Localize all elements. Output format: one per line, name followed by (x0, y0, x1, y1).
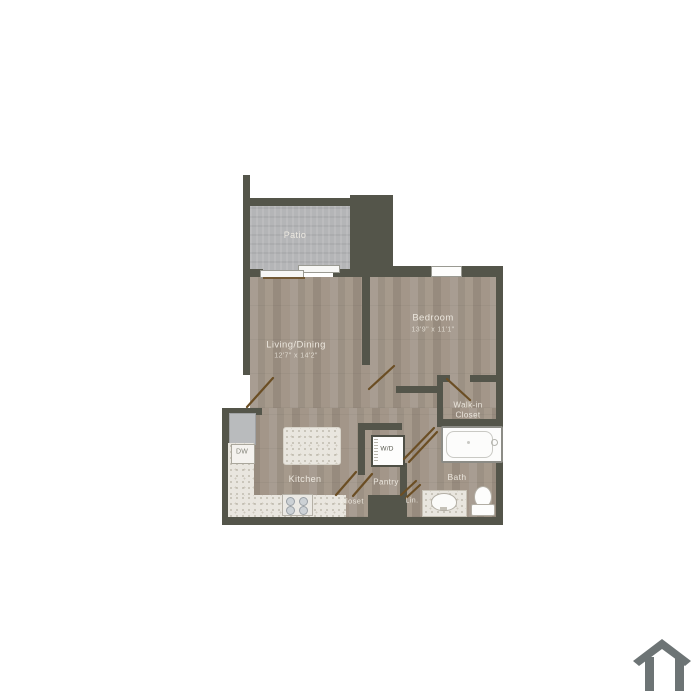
pantry-label: Pantry (373, 478, 399, 487)
linen-door-swing (401, 481, 416, 495)
walkin-closet-label-line2: Closet (455, 411, 480, 420)
closet-label: Closet (340, 497, 364, 506)
walkin-closet-door-swing (447, 379, 470, 400)
living-dining-dimensions: 12'7" x 14'2" (274, 353, 318, 360)
bath-label: Bath (447, 472, 466, 482)
house-icon (628, 634, 696, 698)
dishwasher-label: DW (236, 449, 248, 456)
door-swing-overlay (0, 0, 700, 700)
washer-dryer-label: W/D (380, 446, 393, 453)
walkin-closet-label-line1: Walk-in (453, 401, 482, 410)
bedroom-dimensions: 13'9" x 11'1" (411, 327, 454, 334)
bath-door-swing (404, 428, 434, 459)
floor-plan: Patio Living/Dining 12'7" x 14'2" Bedroo… (0, 0, 700, 700)
living-dining-label: Living/Dining (266, 340, 326, 351)
entry-door-swing (247, 378, 273, 407)
linen-label: Lin. (406, 498, 419, 505)
bath-door-swing (409, 432, 437, 462)
bedroom-door-swing (369, 366, 394, 389)
patio-label: Patio (284, 230, 307, 240)
bedroom-label: Bedroom (412, 313, 453, 324)
closet-bifold-door (336, 472, 356, 495)
closet-bifold-door (353, 474, 372, 496)
kitchen-label: Kitchen (289, 474, 322, 484)
